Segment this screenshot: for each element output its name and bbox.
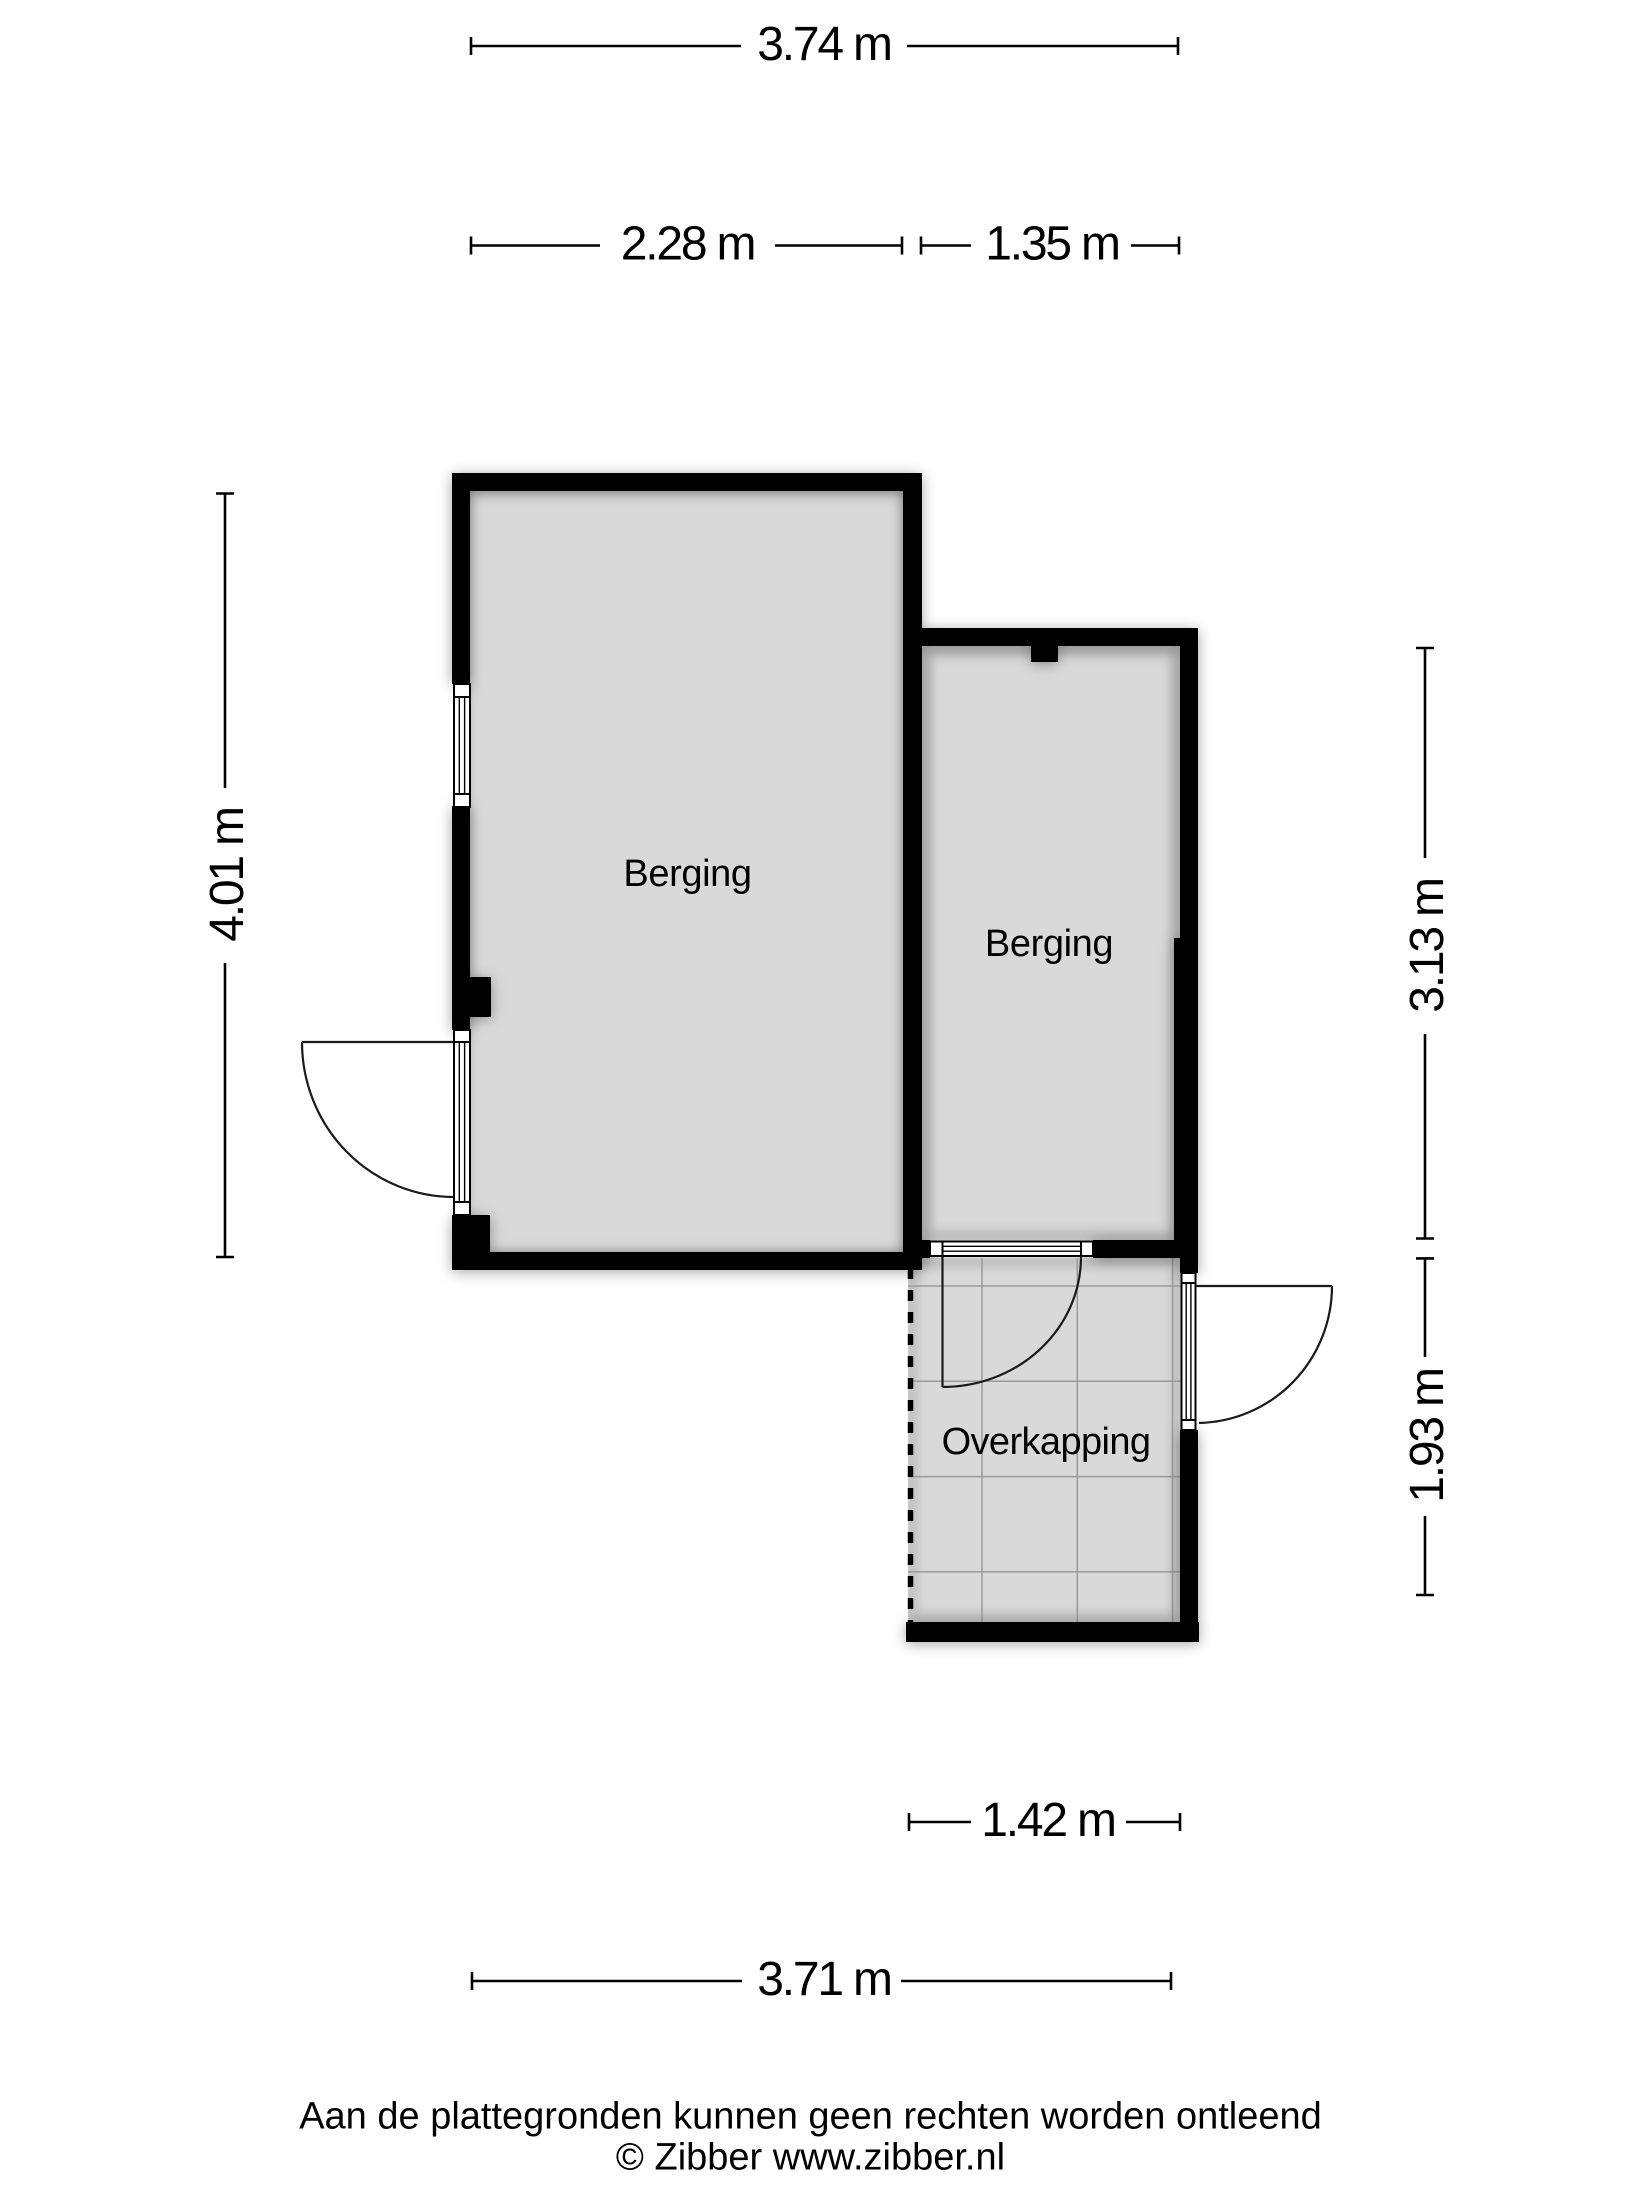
svg-text:1.42 m: 1.42 m bbox=[981, 1794, 1115, 1847]
svg-text:3.74 m: 3.74 m bbox=[757, 18, 891, 71]
svg-text:© Zibber www.zibber.nl: © Zibber www.zibber.nl bbox=[616, 2137, 1005, 2179]
svg-text:1.35 m: 1.35 m bbox=[985, 218, 1119, 271]
svg-text:1.93 m: 1.93 m bbox=[1401, 1369, 1454, 1503]
svg-text:2.28 m: 2.28 m bbox=[621, 218, 755, 271]
svg-text:4.01 m: 4.01 m bbox=[201, 808, 254, 942]
svg-text:Berging: Berging bbox=[985, 923, 1113, 965]
svg-text:Overkapping: Overkapping bbox=[942, 1421, 1151, 1463]
svg-text:3.13 m: 3.13 m bbox=[1401, 879, 1454, 1013]
svg-text:3.71 m: 3.71 m bbox=[757, 1953, 891, 2006]
svg-text:Aan de plattegronden kunnen ge: Aan de plattegronden kunnen geen rechten… bbox=[299, 2096, 1322, 2138]
svg-text:Berging: Berging bbox=[623, 853, 751, 895]
